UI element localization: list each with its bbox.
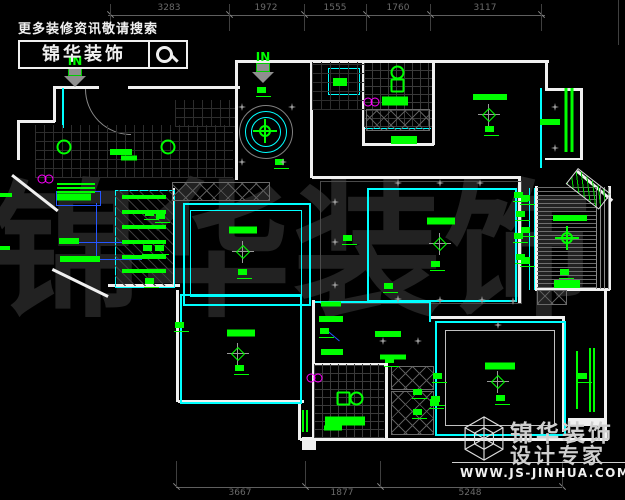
text-annotation (144, 278, 160, 288)
spark-light-icon (551, 144, 559, 152)
text-annotation (256, 87, 272, 97)
ceiling-label-block (321, 302, 341, 307)
ceiling-label-block (485, 363, 515, 370)
ceiling-label-block (122, 255, 166, 259)
text-annotation (237, 269, 253, 279)
hatch-xh (537, 290, 567, 305)
downlight-icon (57, 140, 72, 155)
window-line (571, 88, 574, 152)
ceiling-label-block (121, 156, 137, 161)
ceiling-label-block (0, 193, 12, 197)
dimension-label: 3117 (474, 3, 497, 13)
ceiling-label-block (473, 94, 507, 100)
spark-light-icon (238, 103, 246, 111)
ceiling-fan-icon (557, 228, 577, 248)
ceiling-lamp-icon (229, 345, 247, 363)
wall-segment (176, 290, 179, 402)
ceiling-label-block (391, 136, 417, 144)
ceiling-label-block (60, 256, 100, 262)
in-label: IN (243, 51, 283, 63)
ceiling-label-block (59, 238, 79, 244)
ceiling-label-block (319, 316, 343, 322)
wall-segment (128, 86, 240, 89)
wall-segment (432, 62, 435, 145)
ceiling-label-block (382, 97, 408, 106)
ceiling-label-block (321, 349, 343, 355)
text-annotation (559, 269, 575, 279)
hatch-grid9 (175, 100, 235, 127)
text-annotation (384, 357, 400, 367)
spark-light-icon (238, 158, 246, 166)
ceiling-label-block (229, 227, 257, 234)
text-annotation (412, 389, 428, 399)
extension-line (541, 4, 542, 31)
leader-line (98, 259, 142, 260)
window-line (593, 348, 595, 412)
dimension-label: 1555 (324, 3, 347, 13)
brand-footer: 锦华装饰 设计专家 WWW.JS-JINHUA.COM (452, 410, 625, 500)
spark-light-icon (414, 337, 422, 345)
double-spotlight-icon (307, 374, 324, 383)
window-line (306, 410, 308, 432)
ceiling-lamp-icon (480, 106, 498, 124)
wall-segment (235, 60, 238, 180)
wall-segment (430, 316, 565, 319)
hatch-xh (391, 366, 434, 390)
text-annotation (383, 283, 399, 293)
wall-segment-diagonal (52, 268, 109, 298)
ceiling-lamp-icon (234, 243, 252, 261)
text-annotation (515, 211, 531, 221)
footer-divider (452, 462, 625, 463)
wall-segment (545, 158, 583, 160)
ceiling-label-block (324, 426, 342, 431)
extension-line (618, 0, 619, 45)
dimension-label: 1972 (255, 3, 278, 13)
ceiling-label-block (122, 225, 166, 229)
window-line (565, 88, 568, 152)
wall-segment (545, 60, 548, 90)
toilet-icon (337, 392, 364, 407)
extension-line (430, 4, 431, 31)
extension-line (380, 461, 381, 487)
ceiling-label-block (122, 195, 166, 199)
cad-ceiling-plan-screenshot: 锦华装饰 32831972155517603117366718775248 IN… (0, 0, 625, 500)
wall-segment (298, 400, 301, 440)
promo-banner: 更多装修资讯敬请搜索 锦华装饰 (18, 18, 188, 69)
extension-line (366, 4, 367, 31)
text-annotation (577, 373, 593, 383)
ceiling-fan-icon (255, 121, 275, 141)
hatch-grid9 (312, 62, 364, 110)
text-annotation (174, 322, 190, 332)
ceiling-label-block (553, 215, 587, 221)
ceiling-label-block (57, 191, 95, 193)
dimension-label: 3667 (229, 488, 252, 498)
wall-segment (312, 176, 520, 179)
ceiling-label-block (57, 187, 95, 189)
text-annotation (513, 192, 529, 202)
ceiling-lamp-icon (489, 373, 507, 391)
text-annotation (154, 245, 170, 255)
leader-line (96, 203, 97, 259)
dimension-label: 1760 (387, 3, 410, 13)
text-annotation (319, 328, 335, 338)
spark-light-icon (551, 103, 559, 111)
down-arrow-icon (256, 63, 270, 72)
spark-light-icon (288, 103, 296, 111)
ceiling-label-block (57, 183, 95, 185)
text-annotation (495, 395, 511, 405)
wall-segment (17, 120, 55, 123)
dimension-line (108, 15, 545, 16)
ceiling-line (429, 301, 431, 322)
wall-segment (53, 86, 56, 122)
text-annotation (155, 213, 171, 223)
dimension-label: 3283 (158, 3, 181, 13)
text-annotation (342, 235, 358, 245)
wall-segment (580, 88, 583, 160)
ceiling-label-block (110, 149, 132, 155)
ceiling-label-block (427, 218, 455, 225)
text-annotation (274, 159, 290, 169)
footer-website: WWW.JS-JINHUA.COM (460, 466, 625, 480)
ceiling-lamp-icon (431, 235, 449, 253)
ceiling-label-block (227, 330, 255, 337)
hatch-xh (172, 182, 270, 201)
ceiling-line (62, 88, 64, 128)
text-annotation (484, 126, 500, 136)
extension-line (305, 461, 306, 487)
entry-in-marker-2: IN (243, 51, 283, 83)
window-line (302, 410, 304, 432)
text-annotation (513, 233, 529, 243)
extension-line (176, 461, 177, 487)
promo-headline: 更多装修资讯敬请搜索 (18, 18, 188, 37)
double-spotlight-icon (38, 175, 55, 184)
hatch-xh (366, 109, 430, 131)
ceiling-label-block (122, 240, 166, 244)
cube-logo-icon (464, 416, 504, 461)
ceiling-line (540, 88, 542, 168)
text-annotation (430, 396, 446, 406)
ceiling-label-block (333, 78, 347, 86)
text-annotation (430, 261, 446, 271)
text-annotation (234, 365, 250, 375)
ceiling-label-block (57, 194, 91, 201)
toilet-icon (391, 66, 406, 93)
double-spotlight-icon (364, 98, 381, 107)
text-annotation (432, 373, 448, 383)
ceiling-label-block (554, 280, 580, 288)
wall-segment (385, 363, 388, 440)
magnifier-icon (150, 42, 186, 67)
ceiling-label-block (122, 269, 166, 273)
ceiling-label-block (375, 331, 401, 337)
text-annotation (412, 409, 428, 419)
extension-line (229, 4, 230, 31)
ceiling-label-block (540, 119, 560, 125)
promo-search-box: 锦华装饰 (18, 40, 188, 69)
dimension-label: 1877 (331, 488, 354, 498)
ceiling-label-block (325, 417, 365, 426)
extension-line (304, 4, 305, 31)
spark-light-icon (379, 337, 387, 345)
wall-segment (17, 120, 20, 160)
promo-brand-name: 锦华装饰 (20, 42, 150, 67)
ceiling-label-block (0, 246, 10, 250)
downlight-icon (161, 140, 176, 155)
text-annotation (515, 254, 531, 264)
